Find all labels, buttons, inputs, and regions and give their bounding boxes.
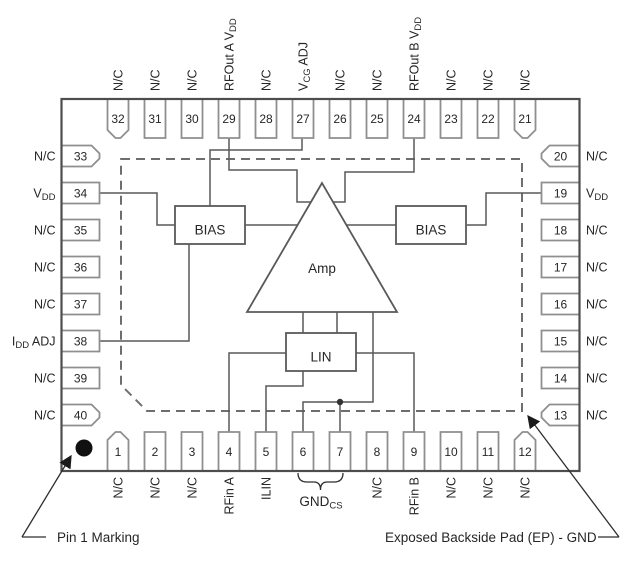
pinout-diagram-canvas: Amp BIAS BIAS LIN 32N/C31N/C30N/C29RFOut…: [0, 0, 630, 561]
pin-22-label: N/C: [482, 69, 496, 91]
pin1-marking-label: Pin 1 Marking: [57, 530, 140, 545]
gnd-junction-dot: [337, 399, 343, 405]
pin-39-label: N/C: [34, 372, 56, 386]
pin-22-number: 22: [481, 112, 495, 126]
pin-40-label: N/C: [34, 409, 56, 423]
wire-pin29-amp: [229, 138, 311, 202]
pin-26-number: 26: [333, 112, 347, 126]
pin-19-number: 19: [554, 187, 568, 201]
pin-10-label: N/C: [445, 477, 459, 499]
pin-33-number: 33: [74, 150, 88, 164]
pin-23-label: N/C: [445, 69, 459, 91]
pin-5-number: 5: [263, 445, 270, 459]
pin-24-number: 24: [407, 112, 421, 126]
pin-33-label: N/C: [34, 150, 56, 164]
pin-38-label: IDD ADJ: [12, 335, 56, 352]
pin-24-label: RFOut B VDD: [408, 17, 425, 91]
pin-17-label: N/C: [586, 261, 608, 275]
pin-35-label: N/C: [34, 224, 56, 238]
pin-20-label: N/C: [586, 150, 608, 164]
wire-bias-right-pin19: [467, 193, 542, 225]
pin-26-label: N/C: [334, 69, 348, 91]
pin-15-number: 15: [554, 335, 568, 349]
amp-label: Amp: [308, 261, 336, 276]
pin-34-number: 34: [74, 187, 88, 201]
exposed-pad-arrow: [528, 416, 619, 537]
pin-4-label: RFin A: [223, 476, 237, 514]
pin-34-label: VDD: [33, 187, 55, 204]
pin-36-label: N/C: [34, 261, 56, 275]
wire-pin24-amp: [333, 138, 414, 202]
pin-8-label: N/C: [371, 477, 385, 499]
pin-4-number: 4: [226, 445, 233, 459]
pin-28-label: N/C: [260, 69, 274, 91]
pin-1-label: N/C: [112, 477, 126, 499]
pin-27-number: 27: [296, 112, 310, 126]
pin-31-number: 31: [148, 112, 162, 126]
pin-9-label: RFin B: [408, 477, 422, 515]
pin-11-label: N/C: [482, 477, 496, 499]
pin-29-label: RFOut A VDD: [223, 18, 240, 91]
pin-36-number: 36: [74, 261, 88, 275]
pin-30-number: 30: [185, 112, 199, 126]
exposed-pad-label: Exposed Backside Pad (EP) - GND: [385, 530, 597, 545]
wire-lin-pin4: [229, 353, 286, 432]
pin-20-number: 20: [554, 150, 568, 164]
pin-14-number: 14: [554, 372, 568, 386]
pinout-diagram: Amp BIAS BIAS LIN 32N/C31N/C30N/C29RFOut…: [0, 0, 630, 561]
pin-27-label: VCG ADJ: [297, 42, 314, 91]
wire-lin-pin5: [266, 371, 303, 432]
wire-lin-pin9: [356, 353, 414, 432]
pin-38-number: 38: [74, 335, 88, 349]
pin-18-label: N/C: [586, 224, 608, 238]
gnd-cs-label: GNDCS: [299, 494, 342, 512]
pin-16-label: N/C: [586, 298, 608, 312]
blocks: Amp BIAS BIAS LIN: [175, 183, 466, 371]
pin-39-number: 39: [74, 372, 88, 386]
pin-14-label: N/C: [586, 372, 608, 386]
wire-pin34-bias-left: [100, 193, 176, 225]
pin-40-number: 40: [74, 409, 88, 423]
pin-2-number: 2: [152, 445, 159, 459]
pin-19-label: VDD: [586, 187, 608, 204]
pin1-arrow: [22, 456, 71, 537]
pin-37-label: N/C: [34, 298, 56, 312]
wire-amp-gnd-pin6: [303, 312, 373, 432]
pin-30-label: N/C: [186, 69, 200, 91]
pin-25-label: N/C: [371, 69, 385, 91]
pin-5-label: ILIN: [260, 477, 274, 500]
pin-1-number: 1: [115, 445, 122, 459]
pin-29-number: 29: [222, 112, 236, 126]
pin-32-label: N/C: [112, 69, 126, 91]
lin-label: LIN: [310, 350, 331, 365]
pin-3-number: 3: [189, 445, 196, 459]
pin-15-label: N/C: [586, 335, 608, 349]
pin-17-number: 17: [554, 261, 568, 275]
pin-25-number: 25: [370, 112, 384, 126]
pin-32-number: 32: [111, 112, 125, 126]
bias-right-label: BIAS: [416, 223, 447, 238]
pin-13-number: 13: [554, 409, 568, 423]
gnd-cs-brace: [298, 473, 343, 490]
pin-28-number: 28: [259, 112, 273, 126]
pin-8-number: 8: [374, 445, 381, 459]
pin-3-label: N/C: [186, 477, 200, 499]
pin-12-label: N/C: [519, 477, 533, 499]
pin-13-label: N/C: [586, 409, 608, 423]
pin-10-number: 10: [444, 445, 458, 459]
pin-35-number: 35: [74, 224, 88, 238]
pin-21-number: 21: [518, 112, 532, 126]
wire-pin27-bias-left-top: [210, 138, 302, 206]
pin1-marking-dot: [76, 440, 93, 457]
amp-triangle: [247, 183, 397, 312]
pin-9-number: 9: [411, 445, 418, 459]
pin-7-number: 7: [337, 445, 344, 459]
pin-23-number: 23: [444, 112, 458, 126]
pin-16-number: 16: [554, 298, 568, 312]
pin-37-number: 37: [74, 298, 88, 312]
bias-left-label: BIAS: [195, 223, 226, 238]
pin-18-number: 18: [554, 224, 568, 238]
pin-2-label: N/C: [149, 477, 163, 499]
pin-31-label: N/C: [149, 69, 163, 91]
pin-11-number: 11: [482, 445, 495, 459]
pin-12-number: 12: [518, 445, 532, 459]
pin-6-number: 6: [300, 445, 307, 459]
wire-pin38-bias-left-bottom: [100, 244, 190, 341]
pin-21-label: N/C: [519, 69, 533, 91]
